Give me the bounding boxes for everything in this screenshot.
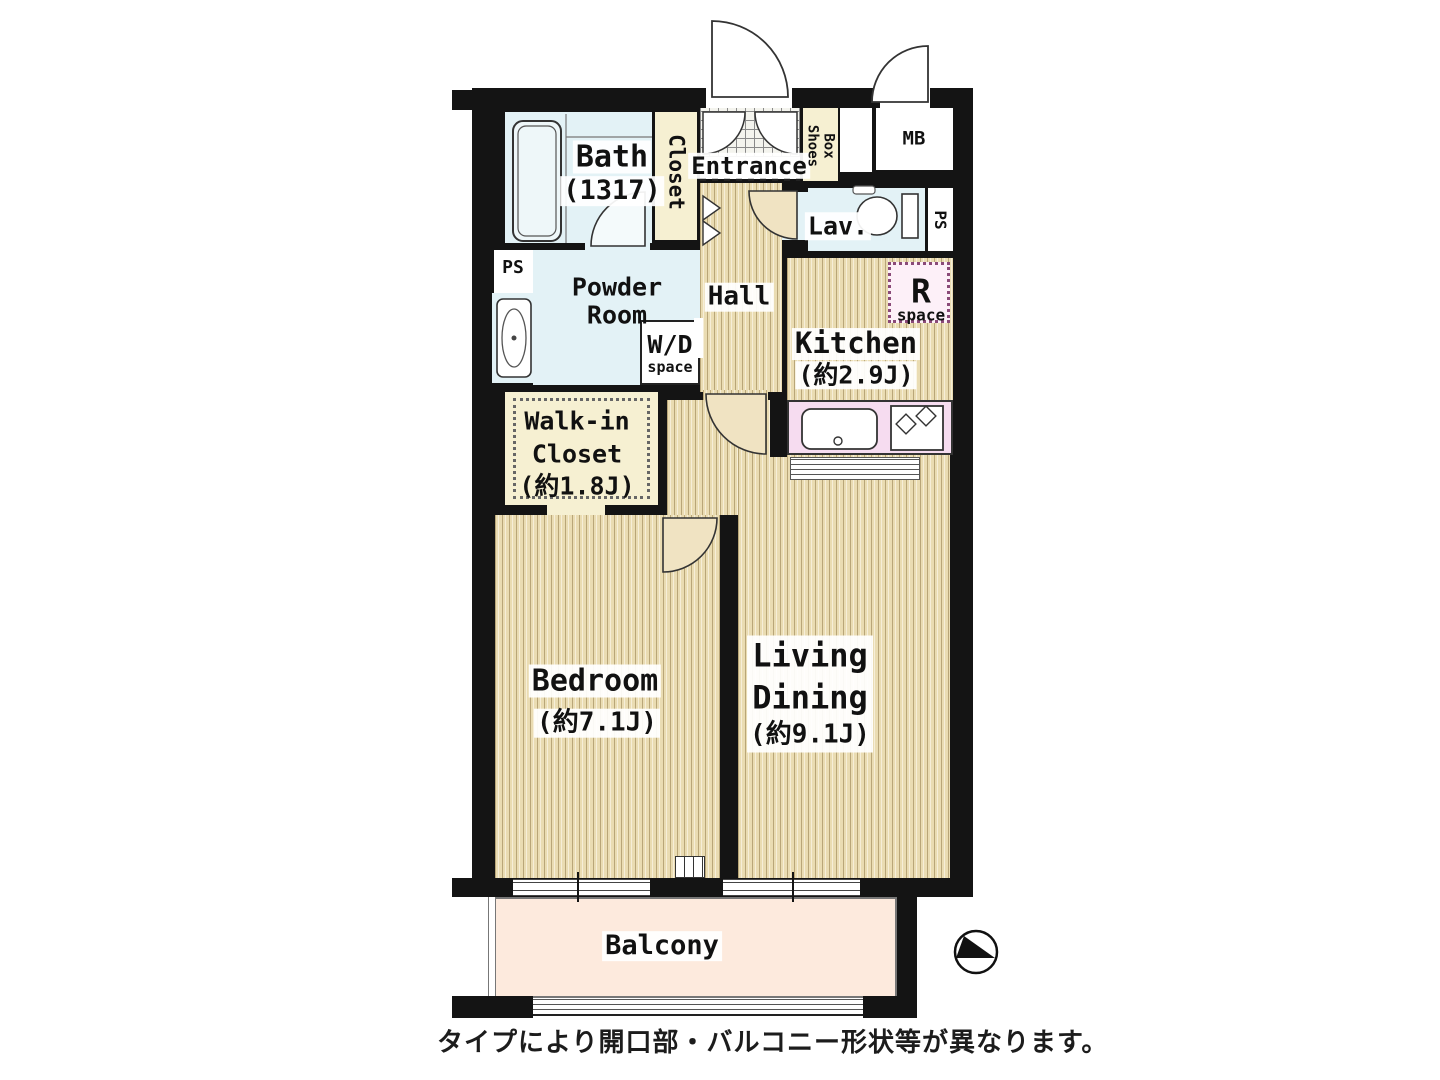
r-space-line2: space [897,306,945,324]
entrance-inner-door-left [703,112,745,154]
bedroom-size-label: (約7.1J) [534,709,660,738]
wic-line2: Closet [532,438,622,471]
entrance-door-swing [712,21,788,97]
hall-label: Hall [705,283,774,312]
powder-room-label: Powder Room [569,274,665,329]
r-space-label: R space [894,276,948,323]
wd-space-label: W/D space [644,331,695,375]
stove-icon [891,406,943,450]
washbasin-drain [512,336,517,341]
closet-bifold-door-bottom [703,221,720,245]
bathtub-icon [513,121,561,241]
lav-label: Lav. [805,212,871,240]
shoes-label: Shoes [804,122,819,170]
ld-line2: Dining [752,677,868,719]
powder-line1: Powder [572,274,662,302]
box-label: Box [820,130,835,161]
living-door-swing [706,394,766,454]
walk-in-closet-label: Walk-in Closet (約1.8J) [516,405,637,503]
lav-hand-basin [853,186,875,194]
wd-line1: W/D [647,331,692,359]
bath-label: Bath [573,141,651,174]
entrance-label: Entrance [688,153,810,179]
balcony-label: Balcony [602,931,722,961]
lav-door-swing [749,191,797,239]
closet-bifold-door-top [703,196,720,220]
ld-size: (約9.1J) [750,719,870,753]
kitchen-size-label: (約2.9J) [795,361,916,389]
disclaimer-caption: タイプにより開口部・バルコニー形状等が異なります。 [437,1022,1108,1059]
ld-line1: Living [752,636,868,678]
mb-label: MB [900,129,929,150]
living-dining-label: Living Dining (約9.1J) [747,636,873,753]
entrance-inner-door-right [755,112,797,154]
wd-line2: space [647,359,692,376]
mb-door-swing [872,46,928,102]
r-space-line1: R [911,276,931,306]
closet-label: Closet [664,131,687,213]
bath-size-label: (1317) [560,176,664,206]
sink-icon [802,409,877,449]
powder-line2: Room [587,301,647,329]
bedroom-label: Bedroom [529,665,661,698]
wic-size: (約1.8J) [519,470,634,503]
toilet-tank [902,194,918,238]
floorplan-canvas: Bath (1317) Closet Entrance Shoes Box MB… [0,0,1440,1080]
kitchen-label: Kitchen [792,328,920,360]
bedroom-door-swing [663,518,717,572]
ps-left-label: PS [499,258,527,278]
wic-line1: Walk-in [524,405,629,438]
ps-right-label: PS [931,207,949,232]
